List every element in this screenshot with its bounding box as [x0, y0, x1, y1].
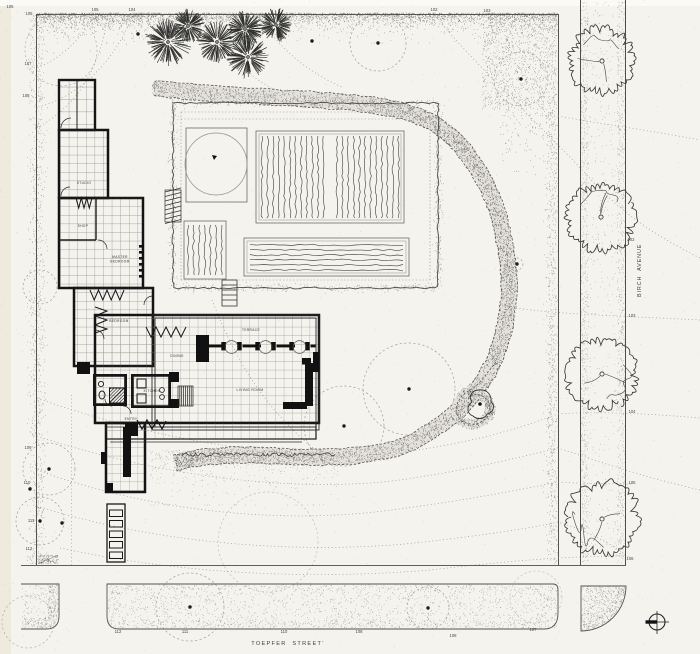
svg-text:108: 108 — [450, 633, 458, 638]
svg-text:110: 110 — [24, 480, 31, 485]
svg-text:103: 103 — [629, 313, 637, 318]
svg-text:MASTER: MASTER — [112, 255, 128, 259]
svg-text:111: 111 — [182, 629, 189, 634]
svg-text:108: 108 — [23, 93, 31, 98]
svg-text:BIRCH AVENUE: BIRCH AVENUE — [637, 244, 643, 297]
svg-text:BEDROOM: BEDROOM — [109, 319, 128, 323]
svg-text:BEDROOM: BEDROOM — [110, 260, 129, 264]
svg-text:ENTRY: ENTRY — [125, 417, 138, 421]
svg-text:104: 104 — [129, 7, 137, 12]
svg-text:107: 107 — [530, 627, 538, 632]
svg-text:108: 108 — [356, 629, 364, 634]
svg-text:105: 105 — [7, 4, 15, 9]
svg-text:SHOP: SHOP — [78, 224, 89, 228]
svg-text:111: 111 — [28, 518, 35, 523]
svg-text:105: 105 — [26, 11, 34, 16]
svg-text:TOEPFER STREET’: TOEPFER STREET’ — [251, 641, 325, 647]
svg-text:105: 105 — [92, 7, 100, 12]
svg-text:112: 112 — [115, 629, 122, 634]
svg-text:102: 102 — [628, 237, 636, 242]
svg-text:103: 103 — [484, 8, 492, 13]
svg-text:TERRACE: TERRACE — [242, 328, 260, 332]
svg-text:109: 109 — [25, 445, 33, 450]
svg-text:107: 107 — [25, 61, 33, 66]
svg-text:105: 105 — [629, 480, 637, 485]
svg-text:110: 110 — [281, 629, 288, 634]
svg-text:102: 102 — [431, 7, 439, 12]
svg-text:STUDIO: STUDIO — [77, 181, 92, 185]
svg-text:LIVING ROOM: LIVING ROOM — [236, 388, 263, 392]
svg-text:104: 104 — [629, 409, 637, 414]
svg-text:DINING: DINING — [170, 354, 184, 358]
svg-text:112: 112 — [26, 546, 33, 551]
svg-text:106: 106 — [627, 556, 635, 561]
svg-text:KITCHEN: KITCHEN — [144, 389, 161, 393]
